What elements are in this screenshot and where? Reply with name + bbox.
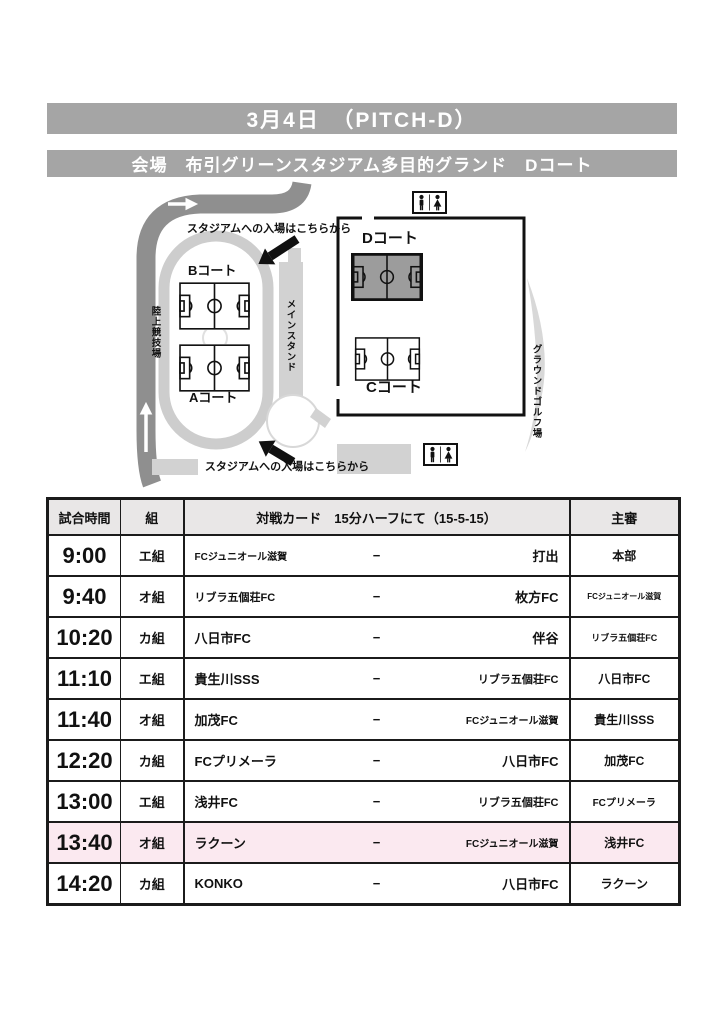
match-group: カ組 — [121, 740, 184, 781]
referee: リブラ五個荘FC — [570, 617, 680, 658]
away-team: 枚方FC — [407, 587, 569, 606]
home-team: 貴生川SSS — [185, 669, 347, 688]
restroom-icon — [413, 192, 446, 213]
schedule-row: 14:20 カ組 KONKO − 八日市FC ラクーン — [48, 863, 680, 905]
match-time: 12:20 — [48, 740, 121, 781]
match-time: 13:00 — [48, 781, 121, 822]
match-group: エ組 — [121, 781, 184, 822]
schedule-row: 10:20 カ組 八日市FC − 伴谷 リブラ五個荘FC — [48, 617, 680, 658]
match-group: オ組 — [121, 699, 184, 740]
referee: FCプリメーラ — [570, 781, 680, 822]
referee: 加茂FC — [570, 740, 680, 781]
col-header-referee: 主審 — [570, 499, 680, 536]
court-d-label: Dコート — [362, 231, 418, 248]
vs-dash: − — [347, 753, 407, 768]
away-team: FCジュニオール滋賀 — [407, 712, 569, 727]
match-card: ラクーン − FCジュニオール滋賀 — [184, 822, 570, 863]
home-team: FCジュニオール滋賀 — [185, 548, 347, 563]
match-time: 13:40 — [48, 822, 121, 863]
home-team: 浅井FC — [185, 792, 347, 811]
main-stand-label: メインスタンド — [284, 299, 294, 373]
court-b-field — [179, 282, 250, 330]
match-time: 11:10 — [48, 658, 121, 699]
schedule-row: 12:20 カ組 FCプリメーラ − 八日市FC 加茂FC — [48, 740, 680, 781]
athletics-field-label: 陸上競技場 — [149, 306, 159, 359]
away-team: 打出 — [407, 546, 569, 565]
col-header-match: 対戦カード 15分ハーフにて（15-5-15） — [184, 499, 570, 536]
court-c-field — [352, 337, 423, 381]
match-group: オ組 — [121, 576, 184, 617]
schedule-row: 9:40 オ組 リブラ五個荘FC − 枚方FC FCジュニオール滋賀 — [48, 576, 680, 617]
referee: ラクーン — [570, 863, 680, 905]
vs-dash: − — [347, 794, 407, 809]
away-team: 八日市FC — [407, 751, 569, 770]
vs-dash: − — [347, 548, 407, 563]
match-card: FCプリメーラ − 八日市FC — [184, 740, 570, 781]
vs-dash: − — [347, 876, 407, 891]
vs-dash: − — [347, 630, 407, 645]
entrance-note-bottom: スタジアムへの入場はこちらから — [202, 461, 372, 473]
home-team: リブラ五個荘FC — [185, 589, 347, 605]
restroom-icon — [424, 444, 457, 465]
away-team: 八日市FC — [407, 874, 569, 893]
match-card: FCジュニオール滋賀 − 打出 — [184, 535, 570, 576]
schedule-row: 13:00 エ組 浅井FC − リブラ五個荘FC FCプリメーラ — [48, 781, 680, 822]
home-team: ラクーン — [185, 833, 347, 852]
match-card: 八日市FC − 伴谷 — [184, 617, 570, 658]
match-time: 14:20 — [48, 863, 121, 905]
match-time: 11:40 — [48, 699, 121, 740]
vs-dash: − — [347, 589, 407, 604]
home-team: 加茂FC — [185, 710, 347, 729]
vs-dash: − — [347, 671, 407, 686]
away-team: リブラ五個荘FC — [407, 794, 569, 810]
schedule-row: 11:40 オ組 加茂FC − FCジュニオール滋賀 貴生川SSS — [48, 699, 680, 740]
court-a-label: Aコート — [189, 391, 237, 405]
schedule-row: 9:00 エ組 FCジュニオール滋賀 − 打出 本部 — [48, 535, 680, 576]
match-card: リブラ五個荘FC − 枚方FC — [184, 576, 570, 617]
match-schedule-table: 試合時間 組 対戦カード 15分ハーフにて（15-5-15） 主審 9:00 エ… — [46, 497, 681, 906]
entrance-plaza — [267, 395, 319, 447]
ground-golf-label: グラウンドゴルフ場 — [530, 344, 540, 439]
col-header-group: 組 — [121, 499, 184, 536]
referee: 貴生川SSS — [570, 699, 680, 740]
court-b-label: Bコート — [188, 264, 236, 278]
court-a-field — [179, 344, 250, 392]
walkway-patch — [152, 459, 198, 475]
match-card: 加茂FC − FCジュニオール滋賀 — [184, 699, 570, 740]
home-team: 八日市FC — [185, 628, 347, 647]
referee: 浅井FC — [570, 822, 680, 863]
match-group: エ組 — [121, 658, 184, 699]
schedule-header-row: 試合時間 組 対戦カード 15分ハーフにて（15-5-15） 主審 — [48, 499, 680, 536]
schedule-row: 13:40 オ組 ラクーン − FCジュニオール滋賀 浅井FC — [48, 822, 680, 863]
match-time: 9:00 — [48, 535, 121, 576]
match-group: カ組 — [121, 863, 184, 905]
referee: 八日市FC — [570, 658, 680, 699]
match-card: 浅井FC − リブラ五個荘FC — [184, 781, 570, 822]
home-team: FCプリメーラ — [185, 751, 347, 770]
match-card: 貴生川SSS − リブラ五個荘FC — [184, 658, 570, 699]
vs-dash: − — [347, 712, 407, 727]
match-group: オ組 — [121, 822, 184, 863]
court-d-field — [352, 254, 422, 300]
match-time: 9:40 — [48, 576, 121, 617]
entrance-note-top: スタジアムへの入場はこちらから — [184, 223, 354, 235]
stand-notch — [288, 248, 301, 264]
schedule-row: 11:10 エ組 貴生川SSS − リブラ五個荘FC 八日市FC — [48, 658, 680, 699]
match-group: エ組 — [121, 535, 184, 576]
match-time: 10:20 — [48, 617, 121, 658]
vs-dash: − — [347, 835, 407, 850]
referee: FCジュニオール滋賀 — [570, 576, 680, 617]
home-team: KONKO — [185, 876, 347, 891]
col-header-time: 試合時間 — [48, 499, 121, 536]
away-team: リブラ五個荘FC — [407, 671, 569, 687]
match-card: KONKO − 八日市FC — [184, 863, 570, 905]
away-team: FCジュニオール滋賀 — [407, 835, 569, 850]
match-group: カ組 — [121, 617, 184, 658]
court-c-label: Cコート — [366, 380, 422, 397]
referee: 本部 — [570, 535, 680, 576]
away-team: 伴谷 — [407, 628, 569, 647]
